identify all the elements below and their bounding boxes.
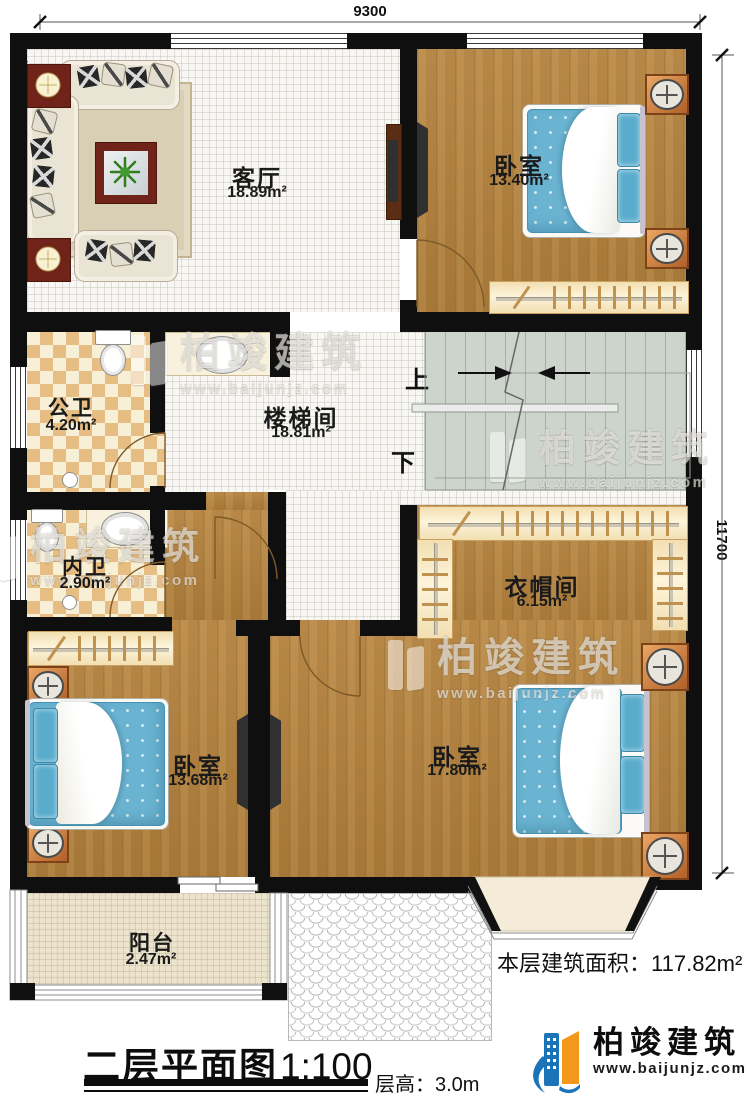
table-lamp-icon	[36, 73, 60, 271]
title-underline-thin	[84, 1090, 368, 1092]
floor-height-note: 层高：3.0m	[375, 1068, 479, 1097]
balcony-sliding-door	[178, 877, 258, 891]
balcony-railing	[10, 890, 287, 1000]
company-logo-icon	[527, 1026, 585, 1096]
floor-height-label: 层高：	[375, 1074, 435, 1096]
plan-linework	[0, 0, 750, 1103]
company-logo-url: www.baijunjz.com	[593, 1060, 746, 1077]
title-underline-thick	[84, 1079, 368, 1086]
floor-area-label: 本层建筑面积：	[497, 951, 651, 976]
floor-area-value: 117.82m²	[651, 951, 742, 976]
company-logo: 柏竣建筑 www.baijunjz.com	[527, 1026, 746, 1096]
dimension-lines	[40, 14, 734, 873]
floor-area-summary: 本层建筑面积：117.82m²	[497, 946, 742, 978]
dimension-ticks	[14, 16, 728, 879]
bay-window	[464, 877, 661, 939]
stairs-symbols	[412, 332, 690, 490]
company-logo-brand: 柏竣建筑	[593, 1026, 746, 1060]
floor-plan: 柏竣建筑 www.baijunjz.com 柏竣建筑 www.baijunjz.…	[0, 0, 750, 1103]
floor-height-value: 3.0m	[435, 1074, 479, 1096]
door-swings	[110, 240, 484, 696]
plant-icon	[111, 158, 139, 186]
